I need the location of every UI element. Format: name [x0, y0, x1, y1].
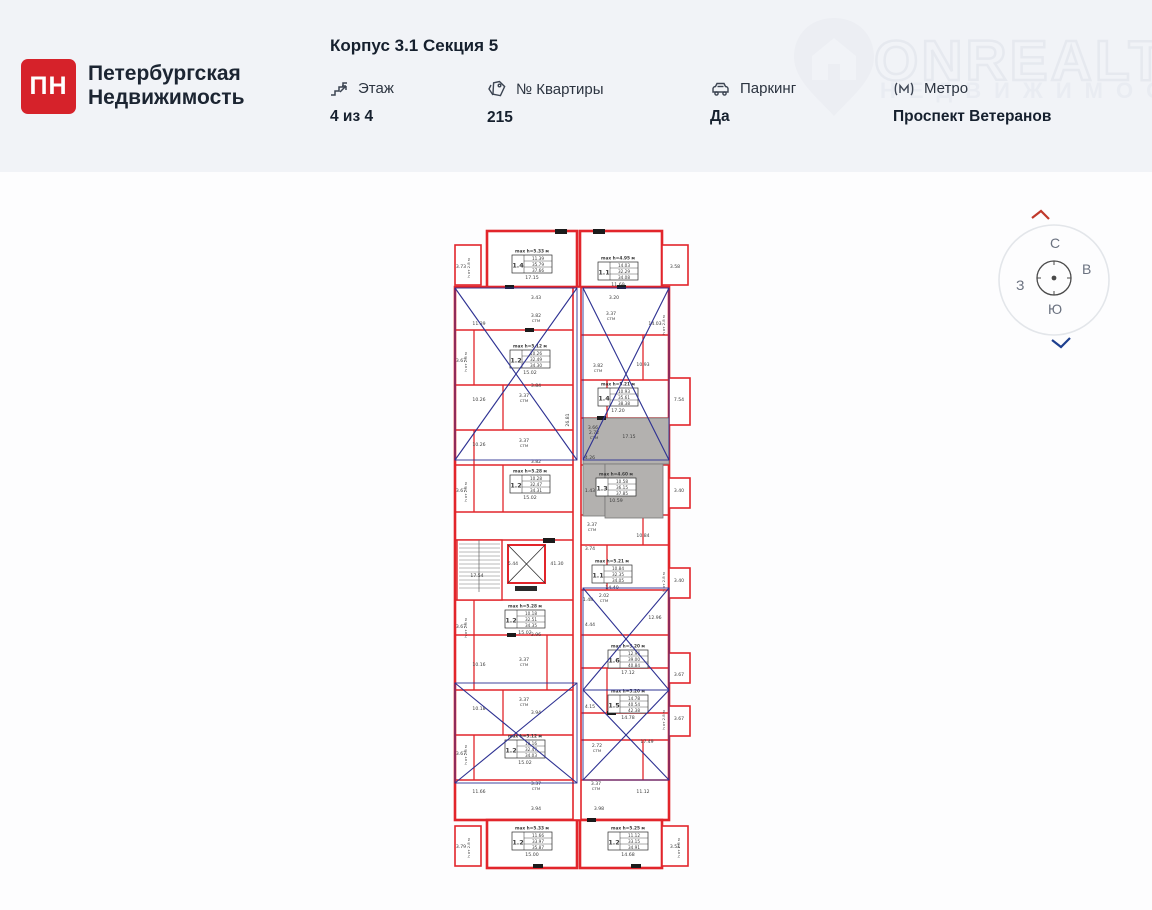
apartment-unit-type: 1.3 [596, 484, 607, 492]
info-floor-label: Этаж [358, 80, 394, 97]
apartment-area-value: 10.58 [616, 479, 628, 484]
compass-south-mark [1052, 338, 1070, 347]
apartment-area-value: 35.87 [532, 845, 544, 850]
apartment-area-value: 40.84 [628, 663, 640, 668]
dimension-label: 11.66 [472, 789, 485, 795]
dimension-label: h от 2.8 м [466, 258, 471, 278]
dimension-label: h от 2.8 м [463, 482, 468, 502]
dimension-label: 10.26 [472, 397, 485, 403]
info-metro-label: Метро [924, 80, 968, 97]
apartment-unit-type: 1.2 [505, 746, 516, 754]
dimension-label: 4.15 [585, 704, 595, 710]
apartment-room-area: 15.02 [523, 495, 536, 501]
compass-label-east: В [1082, 261, 1091, 277]
dimension-label: 3.94 [531, 806, 541, 812]
apartment-room-area: 17.20 [611, 408, 624, 414]
apartment-area-value: 32.47 [530, 482, 542, 487]
dimension-label: 11.12 [636, 789, 649, 795]
stairs-icon [330, 80, 349, 97]
apartment-unit-type: 1.4 [598, 394, 610, 402]
apartment-area-value: 10.28 [530, 476, 542, 481]
apartment-max-height: max h=5.12 м [513, 344, 547, 350]
dimension-label: h от 2.8 м [463, 618, 468, 638]
floor-plan-container: max h=5.33 м1.411.3935.7937.6617.15max h… [447, 228, 695, 873]
apartment-room-area: 15.02 [518, 630, 531, 636]
dimension-label: 7.54 [674, 397, 684, 403]
info-parking: Паркинг Да [710, 80, 796, 126]
info-apartment-number-label: № Квартиры [516, 81, 604, 98]
company-name: Петербургская Недвижимость [88, 62, 244, 110]
compass-label-south: Ю [1048, 301, 1062, 317]
apartment-area-value: 32.29 [618, 269, 630, 274]
dimension-label: 3.20 [609, 295, 619, 301]
dimension-label: 3.67 [674, 672, 684, 678]
dimension-label: 17.49 [640, 739, 653, 745]
dimension-label: 3.82СТМ [531, 313, 541, 323]
dimension-label: h от 2.8 м [661, 710, 666, 730]
metro-icon [893, 81, 915, 97]
apartment-room-area: 15.02 [518, 760, 531, 766]
dimension-label: 3.37СТМ [591, 781, 601, 791]
dimension-label: 2.02СТМ [599, 593, 609, 603]
info-floor: Этаж 4 из 4 [330, 80, 394, 126]
dimension-label: 3.37СТМ [519, 438, 529, 448]
apartment-max-height: max h=5.12 м [508, 734, 542, 740]
info-metro: Метро Проспект Ветеранов [893, 80, 1051, 126]
logo-monogram: ПН [29, 72, 67, 101]
watermark-pin-icon [788, 14, 880, 120]
info-parking-value: Да [710, 108, 796, 126]
dimension-label: 10.84 [636, 533, 649, 539]
apartment-room-area: 10.59 [609, 498, 622, 504]
compass-label-west: З [1016, 277, 1024, 293]
apartment-max-height: max h=5.33 м [515, 826, 549, 832]
info-metro-value: Проспект Ветеранов [893, 108, 1051, 126]
apartment-max-height: max h=5.20 м [611, 644, 645, 650]
apartment-max-height: max h=5.28 м [508, 604, 542, 610]
apartment-area-value: 32.49 [530, 357, 542, 362]
apartment-area-value: 38.38 [618, 401, 630, 406]
apartment-max-height: max h=5.33 м [515, 249, 549, 255]
apartment-area-value: 11.39 [532, 256, 544, 261]
apartment-area-value: 34.91 [628, 845, 640, 850]
apartment-area-value: 10.84 [612, 566, 624, 571]
dimension-label: 3.37СТМ [519, 393, 529, 403]
car-icon [710, 81, 731, 97]
apartment-area-value: 14.78 [628, 696, 640, 701]
dimension-label: 26.81 [565, 413, 571, 426]
dimension-label: 3.67 [674, 716, 684, 722]
apartment-area-value: 34.03 [525, 753, 537, 758]
company-name-line1: Петербургская [88, 62, 244, 86]
dimension-label: 41.30 [550, 561, 563, 567]
dimension-label: 3.96 [531, 632, 541, 638]
apartment-area-value: 36.15 [616, 485, 628, 490]
dimension-label: 3.37СТМ [587, 522, 597, 532]
apartment-area-value: 40.54 [628, 702, 640, 707]
apartment-unit-type: 1.2 [510, 481, 521, 489]
info-floor-value: 4 из 4 [330, 108, 394, 126]
dimension-label: 17.15 [622, 434, 635, 440]
dimension-label: 3.82СТМ [593, 363, 603, 373]
apartment-area-value: 14.03 [618, 263, 630, 268]
dimension-label: h от 2.8 м [676, 838, 681, 858]
dimension-label: 10.16 [472, 662, 485, 668]
apartment-area-value: 10.93 [618, 389, 630, 394]
company-name-line2: Недвижимость [88, 86, 244, 110]
dimension-label: 4.44 [585, 622, 595, 628]
apartment-room-area: 17.15 [525, 275, 538, 281]
dimension-label: 3.37СТМ [519, 657, 529, 667]
dimension-label: 17.54 [470, 573, 483, 579]
dimension-label: 3.58 [670, 264, 680, 270]
dimension-label: h от 2.8 м [661, 315, 666, 335]
stairwell [457, 540, 502, 600]
apartment-unit-type: 1.2 [505, 616, 516, 624]
compass-north-mark [1032, 211, 1049, 219]
header: ПН Петербургская Недвижимость ONREALT НЕ… [0, 0, 1152, 172]
apartment-max-height: max h=5.28 м [513, 469, 547, 475]
apartment-room-area: 15.00 [525, 852, 538, 858]
apartment-area-value: 39.00 [628, 657, 640, 662]
apartment-area-value: 32.35 [612, 572, 624, 577]
compass-label-north: С [1050, 235, 1060, 251]
apartment-area-value: 32.51 [525, 617, 537, 622]
apartment-max-height: max h=4.60 м [599, 472, 633, 478]
apartment-unit-type: 1.2 [512, 838, 523, 846]
dimension-label: 3.84 [531, 383, 541, 389]
apartment-room-area: 17.12 [621, 670, 634, 676]
dimension-label: 10.26 [472, 442, 485, 448]
apartment-area-value: 10.18 [525, 611, 537, 616]
apartment-area-value: 34.31 [530, 488, 542, 493]
dimension-label: 3.43 [531, 295, 541, 301]
apartment-area-value: 34.35 [525, 623, 537, 628]
dimension-label: 5.44 [508, 561, 518, 567]
apartment-room-area: 14.78 [621, 715, 634, 721]
dimension-label: 3.40 [674, 578, 684, 584]
apartment-area-value: 34.30 [530, 363, 542, 368]
dimension-label: 3.74 [585, 546, 595, 552]
tag-icon [487, 80, 507, 98]
info-apartment-number: № Квартиры 215 [487, 80, 604, 127]
dimension-label: 3.37СТМ [531, 781, 541, 791]
dimension-label: 12.96 [648, 615, 661, 621]
apartment-area-value: 34.05 [612, 578, 624, 583]
dimension-label: 3.98 [594, 806, 604, 812]
dimension-label: 3.37СТМ [606, 311, 616, 321]
apartment-area-value: 11.12 [628, 833, 640, 838]
dimension-label: 3.37СТМ [519, 697, 529, 707]
dimension-label: 3.40 [674, 488, 684, 494]
apartment-max-height: max h=4.95 м [601, 256, 635, 262]
apartment-unit-type: 1.1 [598, 268, 609, 276]
apartment-unit-type: 1.2 [608, 838, 619, 846]
apartment-max-height: max h=5.21 м [595, 559, 629, 565]
dimension-label: 1.43 [585, 488, 595, 494]
apartment-area-value: 33.97 [532, 839, 544, 844]
apartment-room-area: 15.02 [523, 370, 536, 376]
floor-plan: max h=5.33 м1.411.3935.7937.6617.15max h… [447, 228, 695, 873]
apartment-area-value: 42.38 [628, 708, 640, 713]
page: { "header": { "logo": { "mark": "ПН", "l… [0, 0, 1152, 910]
dimension-label: 3.79 [456, 844, 466, 850]
dimension-label: h от 2.8 м [661, 572, 666, 592]
dimension-label: 3.73 [456, 264, 466, 270]
dimension-label: 10.93 [636, 362, 649, 368]
apartment-area-value: 33.15 [628, 839, 640, 844]
apartment-unit-type: 1.1 [592, 571, 603, 579]
apartment-max-height: max h=5.20 м [611, 689, 645, 695]
apartment-area-value: 11.66 [532, 833, 544, 838]
dimension-label: h от 2.8 м [463, 745, 468, 765]
compass-center-dot [1052, 276, 1057, 281]
apartment-unit-type: 1.2 [510, 356, 521, 364]
apartment-area-value: 37.85 [616, 491, 628, 496]
dimension-label: h от 2.8 м [466, 838, 471, 858]
info-parking-label: Паркинг [740, 80, 796, 97]
apartment-unit-type: 1.4 [512, 261, 524, 269]
apartment-area-value: 37.66 [532, 268, 544, 273]
apartment-room-area: 11.69 [611, 282, 624, 288]
info-apartment-number-value: 215 [487, 109, 604, 127]
apartment-area-value: 35.79 [532, 262, 544, 267]
page-title: Корпус 3.1 Секция 5 [330, 36, 498, 56]
apartment-max-height: max h=5.25 м [611, 826, 645, 832]
apartment-area-value: 34.08 [618, 275, 630, 280]
dimension-label: 2.72СТМ [592, 743, 602, 753]
apartment-unit-type: 1.5 [608, 701, 619, 709]
apartment-room-area: 14.68 [621, 852, 634, 858]
company-logo: ПН [21, 59, 76, 114]
apartment-area-value: 35.61 [618, 395, 630, 400]
compass: С В З Ю [994, 204, 1114, 352]
dimension-label: h от 2.8 м [463, 352, 468, 372]
